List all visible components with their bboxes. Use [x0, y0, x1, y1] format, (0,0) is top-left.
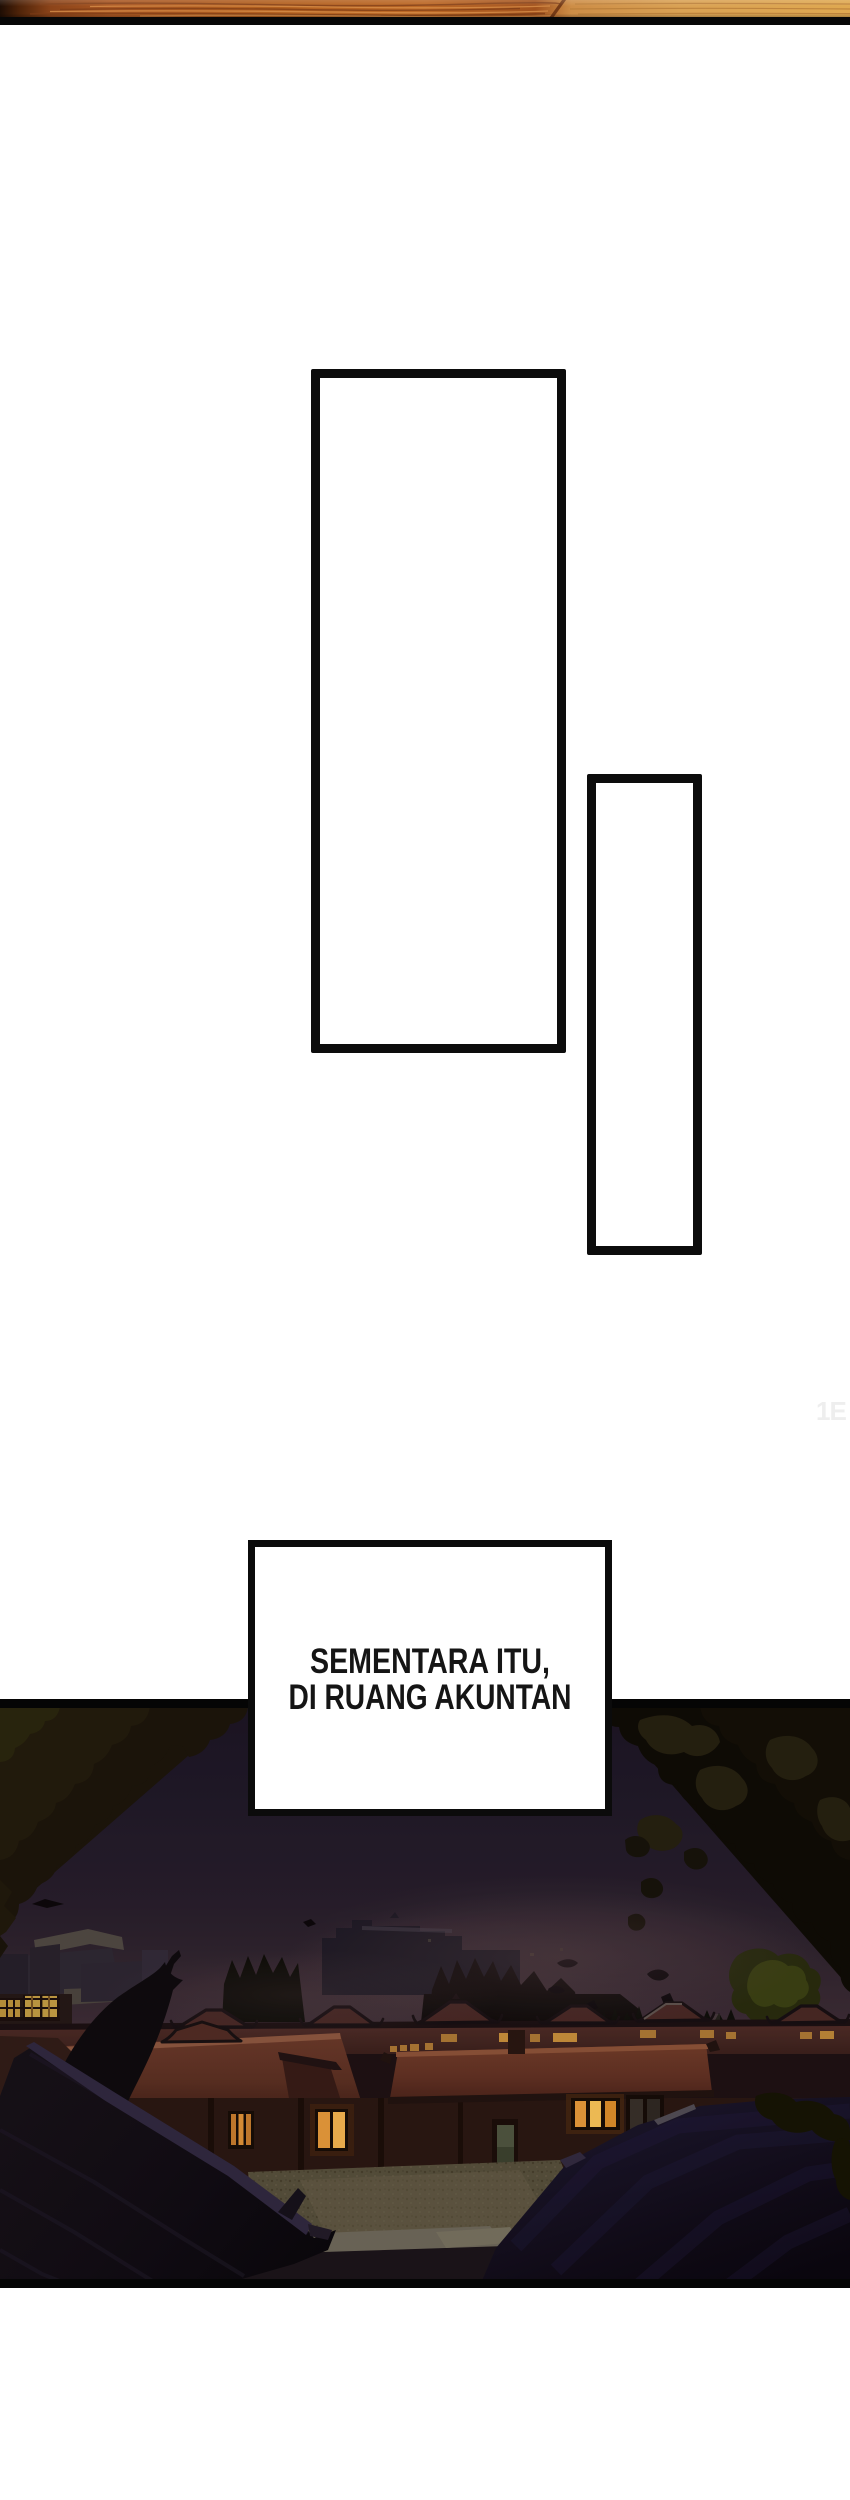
svg-text:DI RUANG AKUNTAN: DI RUANG AKUNTAN — [289, 1678, 572, 1717]
svg-text:SEMENTARA ITU,: SEMENTARA ITU, — [310, 1642, 550, 1681]
